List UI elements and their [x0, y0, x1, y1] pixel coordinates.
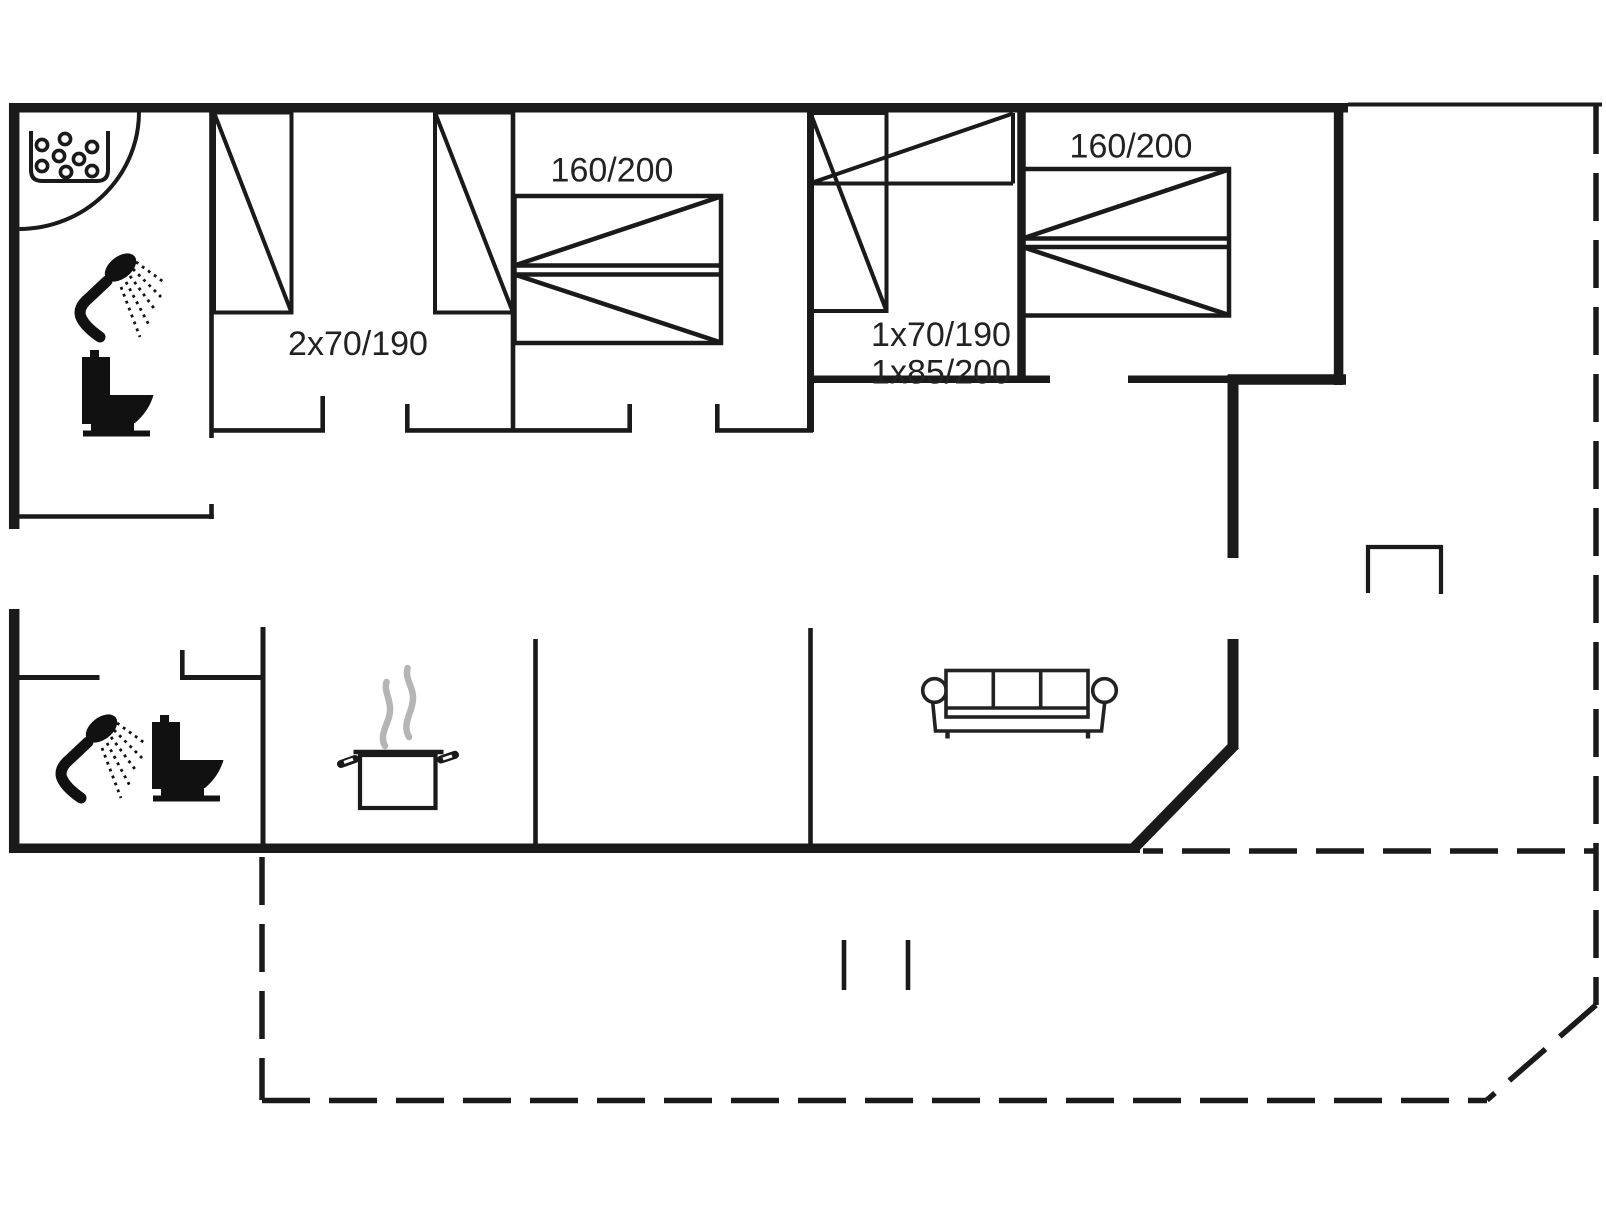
svg-text:2x70/190: 2x70/190	[288, 325, 428, 363]
svg-text:1x70/190: 1x70/190	[871, 316, 1011, 354]
svg-text:1x85/200: 1x85/200	[871, 354, 1011, 392]
svg-text:160/200: 160/200	[551, 152, 674, 190]
svg-text:160/200: 160/200	[1070, 128, 1193, 166]
